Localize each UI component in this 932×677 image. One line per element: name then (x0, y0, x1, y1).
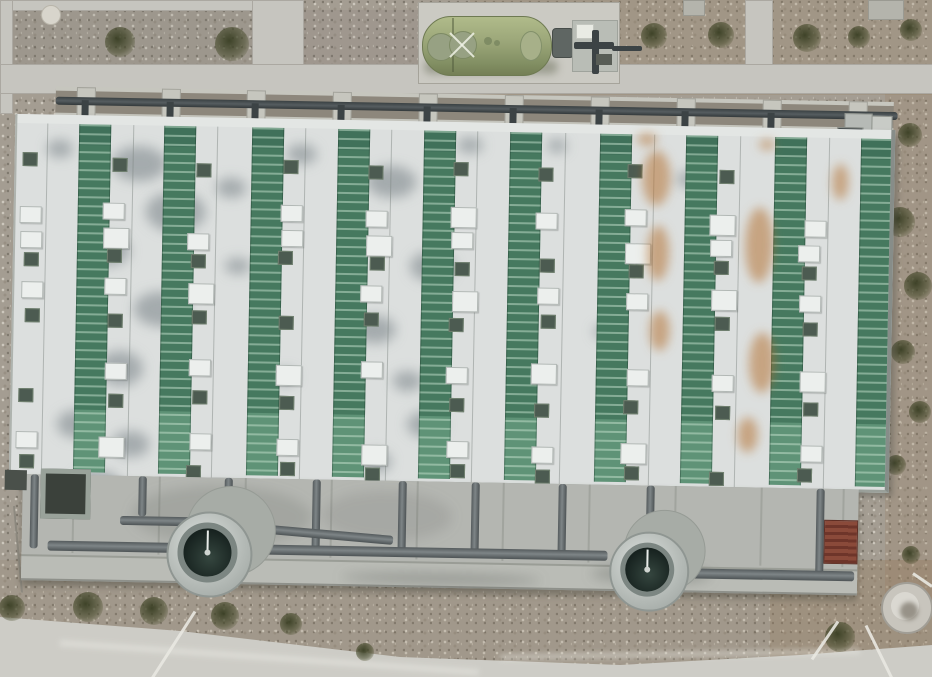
white-roof-hatch (712, 375, 734, 392)
white-roof-hatch (625, 209, 647, 226)
dark-roof-hatch (719, 170, 734, 184)
white-roof-hatch (450, 207, 476, 228)
rust-stain (647, 226, 670, 281)
dark-roof-hatch (192, 310, 207, 324)
green-louver-stripe (332, 129, 370, 478)
white-roof-hatch (446, 441, 468, 458)
white-roof-hatch (709, 215, 735, 236)
white-roof-hatch (103, 203, 125, 220)
white-roof-hatch (361, 361, 383, 378)
white-roof-hatch (800, 445, 822, 462)
tank-nozzle (484, 37, 492, 45)
apron-pipe (311, 479, 320, 553)
dark-roof-hatch (709, 472, 724, 486)
dark-roof-hatch (107, 249, 122, 263)
dark-roof-hatch (280, 462, 295, 476)
tank-end-plate (520, 31, 542, 61)
path-top-left-horizontal (0, 0, 257, 11)
white-roof-hatch (804, 220, 826, 237)
tank-motor (552, 28, 574, 58)
apron-pipe (397, 481, 406, 555)
panel-seam (299, 128, 306, 479)
dark-roof-hatch (803, 402, 818, 416)
dark-roof-hatch (18, 388, 33, 402)
grime-stain (47, 140, 73, 158)
dark-roof-hatch (449, 318, 464, 332)
dark-roof-hatch (803, 322, 818, 336)
white-roof-hatch (446, 367, 468, 384)
blower-hub (204, 549, 210, 555)
panel-seam (559, 133, 566, 484)
rust-stain (745, 207, 774, 283)
dark-roof-hatch (715, 317, 730, 331)
dark-roof-hatch (802, 266, 817, 280)
dark-roof-hatch (623, 400, 638, 414)
dark-roof-hatch (455, 262, 470, 276)
white-roof-hatch (103, 228, 129, 249)
white-roof-hatch (531, 446, 553, 463)
tank-nozzle (494, 40, 500, 46)
white-roof-hatch (626, 293, 648, 310)
rust-stain (642, 150, 671, 206)
dark-roof-hatch (370, 256, 385, 270)
equipment-block (868, 0, 904, 20)
grime-stain (216, 178, 246, 199)
rust-stain (737, 417, 758, 452)
green-louver-stripe (246, 127, 284, 476)
dark-roof-hatch (624, 466, 639, 480)
white-roof-hatch (189, 433, 211, 450)
white-roof-hatch (451, 232, 473, 249)
dark-roof-hatch (538, 168, 553, 182)
white-roof-hatch (98, 436, 124, 457)
shrub (848, 26, 870, 48)
dark-roof-hatch (24, 252, 39, 266)
dark-roof-hatch (535, 470, 550, 484)
dark-roof-hatch (112, 158, 127, 172)
white-roof-hatch (19, 206, 41, 223)
white-roof-hatch (620, 443, 646, 464)
dark-roof-hatch (629, 264, 644, 278)
dark-roof-hatch (368, 165, 383, 179)
white-roof-hatch (627, 369, 649, 386)
treatment-building (0, 86, 932, 663)
grime-stain (225, 258, 251, 274)
rust-stain (637, 133, 657, 145)
white-roof-hatch (800, 371, 826, 392)
white-roof-hatch (361, 444, 387, 465)
apron-pipe (470, 482, 479, 556)
green-louver-stripe (418, 130, 456, 479)
white-roof-hatch (189, 359, 211, 376)
blower-hub (644, 567, 650, 573)
equipment-block (683, 0, 705, 16)
white-roof-hatch (537, 288, 559, 305)
white-roof-hatch (531, 363, 557, 384)
green-louver-stripe (504, 132, 542, 481)
green-louver-stripe (855, 138, 893, 487)
shrub (900, 19, 922, 41)
skid-pipe (592, 30, 599, 74)
green-louver-stripe (73, 124, 111, 473)
white-roof-hatch (105, 363, 127, 380)
apron-pipe (138, 476, 147, 516)
dark-roof-hatch (450, 464, 465, 478)
white-roof-hatch (21, 281, 43, 298)
skid-valve-box (596, 54, 612, 65)
dark-roof-hatch (715, 406, 730, 420)
dark-roof-hatch (196, 163, 211, 177)
white-roof-hatch (188, 283, 214, 304)
panel-seam (823, 138, 830, 489)
shrub (793, 24, 821, 52)
manhole-shadow (900, 602, 918, 620)
dark-roof-hatch (540, 259, 555, 273)
white-rock (41, 5, 61, 25)
panel-seam (41, 124, 48, 475)
dark-roof-hatch (25, 308, 40, 322)
white-roof-hatch (104, 278, 126, 295)
grime-stain (457, 137, 483, 153)
skid-pipe (612, 46, 642, 51)
white-roof-hatch (281, 230, 303, 247)
sump-pit (40, 468, 91, 519)
dark-roof-hatch (627, 164, 642, 178)
dark-roof-hatch (279, 316, 294, 330)
dark-roof-hatch (364, 312, 379, 326)
white-roof-hatch (15, 431, 37, 448)
white-roof-hatch (187, 233, 209, 250)
dark-roof-hatch (797, 468, 812, 482)
dark-roof-hatch (191, 254, 206, 268)
dark-roof-hatch (449, 398, 464, 412)
dark-roof-hatch (19, 454, 34, 468)
sump-pit-small (5, 470, 27, 490)
dark-roof-hatch (714, 261, 729, 275)
white-roof-hatch (798, 245, 820, 262)
dark-roof-hatch (108, 314, 123, 328)
striped-roof-building (9, 114, 896, 493)
white-roof-hatch (799, 295, 821, 312)
shrub (641, 23, 667, 49)
shrub (105, 27, 135, 57)
dark-roof-hatch (278, 251, 293, 265)
white-roof-hatch (710, 240, 732, 257)
white-roof-hatch (535, 212, 557, 229)
apron-pipe (557, 484, 566, 558)
white-roof-hatch (360, 285, 382, 302)
white-roof-hatch (276, 439, 298, 456)
white-roof-hatch (20, 231, 42, 248)
white-roof-hatch (365, 210, 387, 227)
white-roof-hatch (711, 290, 737, 311)
rust-stain (759, 140, 775, 150)
dark-roof-hatch (108, 394, 123, 408)
rust-stain (832, 164, 849, 200)
dark-roof-hatch (192, 390, 207, 404)
dark-roof-hatch (23, 152, 38, 166)
white-roof-hatch (276, 365, 302, 386)
apron-pipe (30, 474, 39, 548)
rust-stain (649, 311, 670, 351)
dark-roof-hatch (453, 162, 468, 176)
dark-roof-hatch (279, 396, 294, 410)
red-grating-platform (823, 520, 858, 565)
shrub (215, 27, 249, 61)
dark-roof-hatch (283, 160, 298, 174)
dark-roof-hatch (541, 315, 556, 329)
white-roof-hatch (366, 235, 392, 256)
shrub (708, 22, 734, 48)
white-roof-hatch (452, 291, 478, 312)
white-roof-hatch (281, 205, 303, 222)
dark-roof-hatch (534, 403, 549, 417)
grime-stain (392, 371, 422, 392)
aerial-facility-photo (0, 0, 932, 677)
